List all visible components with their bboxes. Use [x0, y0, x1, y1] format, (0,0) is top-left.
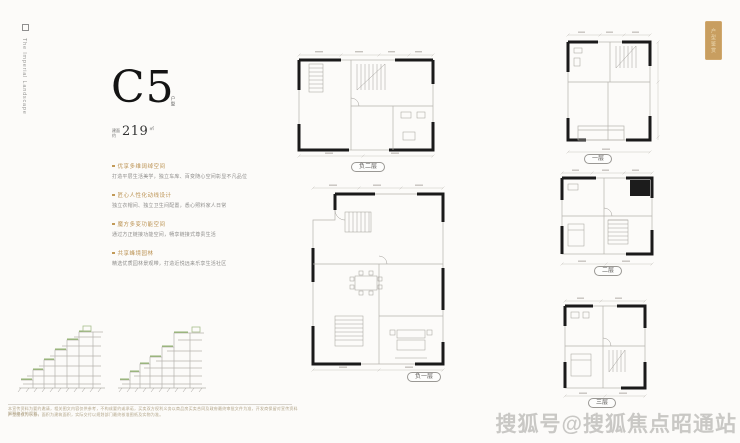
unit-name-suffix: 户型 [170, 96, 176, 107]
feature-desc: 通过方正链接功能空间，畅享链接式尊贵生活 [112, 232, 272, 239]
plan-label-floor1: 一层 [584, 154, 612, 164]
disclaimer-line-2: 户型图仅为示意，面积为建筑面积，实际交付以规划部门最终核准图纸及实物为准。 [8, 412, 208, 417]
feature-title: 优享多维阔绰空间 [112, 163, 272, 171]
feature-item: 匠心人性化动线设计 独立衣帽间、独立卫生间配置，悉心照料家人日常 [112, 192, 272, 210]
plan-label-basement1: 负一层 [407, 372, 441, 382]
plan-label-floor2: 二层 [594, 266, 622, 276]
feature-list: 优享多维阔绰空间 打造平层生活美学，独立车库、百变随心空间彰显不凡品位 匠心人性… [112, 163, 272, 279]
feature-desc: 独立衣帽间、独立卫生间配置，悉心照料家人日常 [112, 203, 272, 210]
feature-title: 魔方多变功能空间 [112, 221, 272, 229]
building-section-diagram-2 [112, 316, 212, 398]
corner-tag-text: 户型鉴赏 [710, 28, 717, 54]
plan-label-floor3: 三层 [588, 398, 616, 408]
feature-item: 魔方多变功能空间 通过方正链接功能空间，畅享链接式尊贵生活 [112, 221, 272, 239]
building-section-diagram-1 [13, 310, 109, 398]
feature-desc: 精选优质园林景观带，打造近悦远来乐享生活社区 [112, 261, 272, 268]
watermark: 搜狐号@搜狐焦点昭通站 [496, 408, 737, 438]
feature-item: 优享多维阔绰空间 打造平层生活美学，独立车库、百变随心空间彰显不凡品位 [112, 163, 272, 181]
plan-label-basement2: 负二层 [351, 162, 385, 172]
floorplan-basement1 [299, 184, 459, 374]
feature-title: 共享峰境园林 [112, 250, 272, 258]
floorplan-floor1 [552, 30, 666, 158]
feature-desc: 打造平层生活美学，独立车库、百变随心空间彰显不凡品位 [112, 174, 272, 181]
unit-area: 建面 约 219 ㎡ [112, 126, 154, 138]
area-prefix-bottom: 约 [112, 134, 120, 139]
area-value: 219 [122, 126, 148, 138]
footer-divider [8, 404, 292, 405]
brand-logo-square [22, 24, 29, 31]
floorplan-floor3 [551, 296, 661, 404]
feature-title: 匠心人性化动线设计 [112, 192, 272, 200]
brand-vertical-text: The Imperial Landscape [21, 38, 27, 115]
area-prefix: 建面 约 [112, 129, 120, 138]
feature-item: 共享峰境园林 精选优质园林景观带，打造近悦远来乐享生活社区 [112, 250, 272, 268]
brochure-page: The Imperial Landscape C5 户型 建面 约 219 ㎡ … [0, 0, 740, 443]
area-unit: ㎡ [149, 126, 154, 132]
unit-name: C5 [111, 66, 175, 110]
floorplan-floor2 [548, 168, 668, 272]
floorplan-basement2 [283, 50, 449, 162]
corner-tag: 户型鉴赏 [705, 21, 722, 60]
